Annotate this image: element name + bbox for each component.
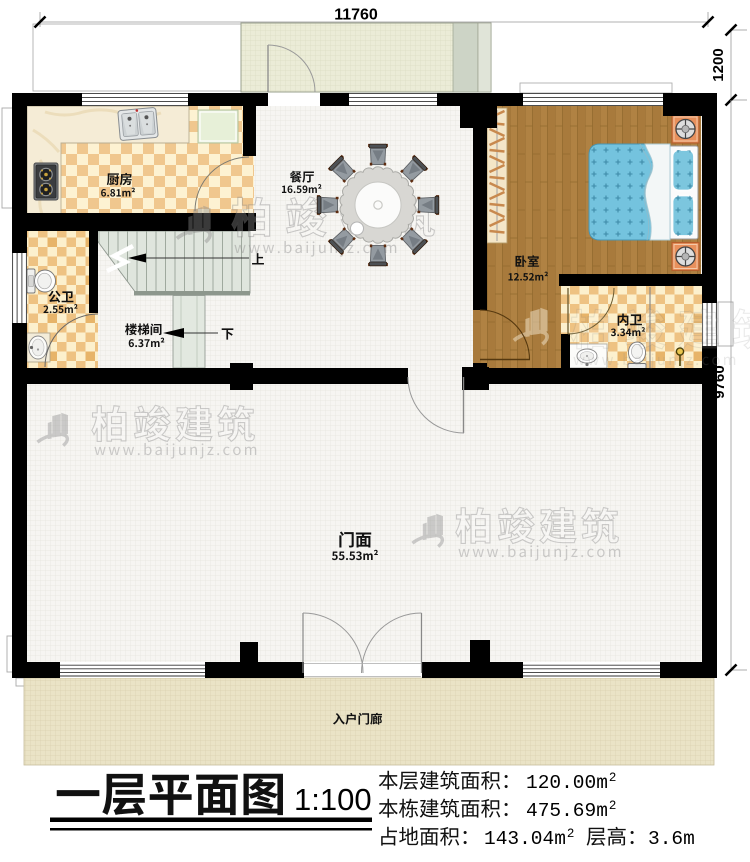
svg-text:143.04m: 143.04m — [484, 828, 566, 850]
svg-text:3.6m: 3.6m — [648, 828, 695, 850]
svg-text:11760: 11760 — [334, 7, 378, 24]
svg-text:2: 2 — [567, 827, 575, 841]
svg-text:1:100: 1:100 — [294, 782, 372, 817]
svg-text:2: 2 — [609, 771, 617, 785]
svg-text:475.69m: 475.69m — [526, 800, 608, 822]
svg-text:9760: 9760 — [711, 365, 728, 398]
svg-text:1200: 1200 — [710, 48, 727, 81]
svg-text:2: 2 — [609, 799, 617, 813]
svg-text:120.00m: 120.00m — [526, 772, 608, 794]
